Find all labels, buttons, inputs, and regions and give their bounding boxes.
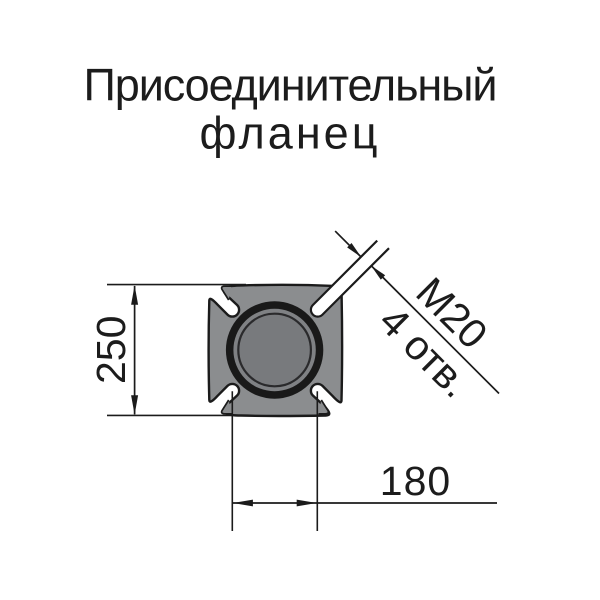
svg-text:фланец: фланец bbox=[200, 108, 381, 159]
svg-text:Присоединительный: Присоединительный bbox=[84, 60, 497, 111]
svg-text:250: 250 bbox=[88, 316, 134, 384]
svg-text:180: 180 bbox=[380, 458, 451, 504]
